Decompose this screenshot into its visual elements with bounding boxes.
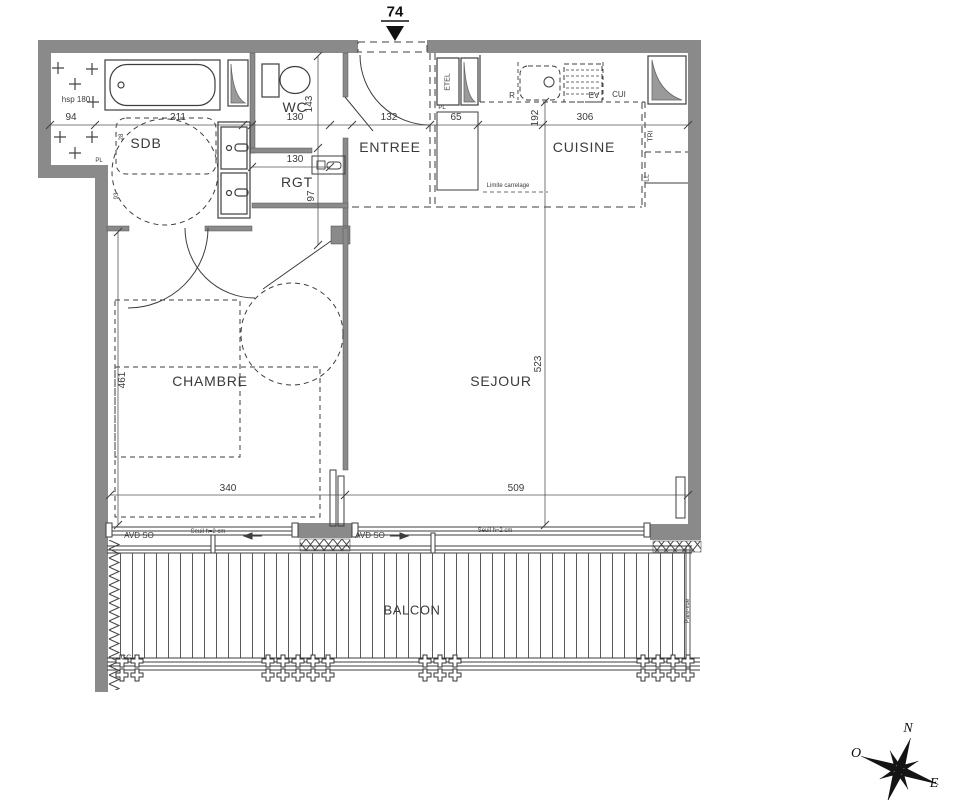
partitions <box>107 53 350 470</box>
dim-cuisine-depth: 192 <box>531 110 541 127</box>
unit-marker <box>381 21 409 41</box>
dim-entree-width: 132 <box>381 113 398 123</box>
dim-sdb-left: 94 <box>65 113 76 123</box>
balustrade-posts <box>116 655 694 681</box>
compass-west-label: O <box>851 747 861 761</box>
room-label-sdb: SDB <box>130 136 161 150</box>
dim-chambre-depth: 461 <box>118 372 128 389</box>
label-tri: TRI <box>648 130 655 141</box>
unit-number: 74 <box>387 5 404 20</box>
dim-sejour-width: 509 <box>508 484 525 494</box>
dim-sdb-door-b: 93 <box>114 193 120 200</box>
label-seuil-right: Seuil h=2 cm <box>478 528 513 534</box>
room-label-entree: ENTREE <box>359 140 421 154</box>
label-seuil-left: Seuil h=2 cm <box>191 529 226 535</box>
floor-plan: 74 SDB WC RGT ENTREE CUISINE CHAMBRE SEJ… <box>0 0 975 800</box>
label-avd-so-left: AVD SO <box>124 532 154 540</box>
room-label-sejour: SEJOUR <box>470 374 532 388</box>
dim-wc-depth: 143 <box>305 96 315 113</box>
dim-cuisine-width: 306 <box>577 113 594 123</box>
room-label-rgt: RGT <box>281 175 313 189</box>
dim-sdb-bath: 211 <box>170 113 186 123</box>
dim-rgt-width: 130 <box>287 155 304 165</box>
label-gc: GC <box>121 655 132 662</box>
tile-cross-marks <box>52 62 99 159</box>
dim-sdb-door-a: 28 <box>119 134 125 141</box>
label-limite-carrelage: Limite carrelage <box>487 183 530 189</box>
room-label-chambre: CHAMBRE <box>172 374 248 388</box>
room-label-balcon: BALCON <box>383 604 440 617</box>
dim-sejour-depth: 523 <box>534 356 544 373</box>
label-fridge: R <box>509 92 515 100</box>
compass-east-label: E <box>930 777 939 791</box>
dim-pl-width: 65 <box>450 113 461 123</box>
dashed-outlines <box>112 42 642 517</box>
dim-rgt-depth: 97 <box>307 190 317 201</box>
label-sink: EV <box>589 92 600 100</box>
label-avd-so-right: AVD SO <box>355 532 385 540</box>
dim-wc-width: 130 <box>287 113 304 123</box>
label-etel: ETEL <box>445 73 452 91</box>
label-pl-kitchen: PL <box>438 105 445 111</box>
label-washer: LL <box>644 174 651 182</box>
floor-plan-linework <box>0 0 975 800</box>
label-pare-vue: Pare-vue <box>685 599 691 623</box>
label-cooker: CUI <box>612 91 626 99</box>
label-pl-left: PL <box>95 158 102 164</box>
label-hsp: hsp 180 <box>62 96 90 104</box>
windows <box>106 523 692 553</box>
dim-chambre-width: 340 <box>220 484 237 494</box>
room-label-cuisine: CUISINE <box>553 140 615 154</box>
fixtures <box>105 55 688 526</box>
compass-north-label: N <box>903 722 912 736</box>
